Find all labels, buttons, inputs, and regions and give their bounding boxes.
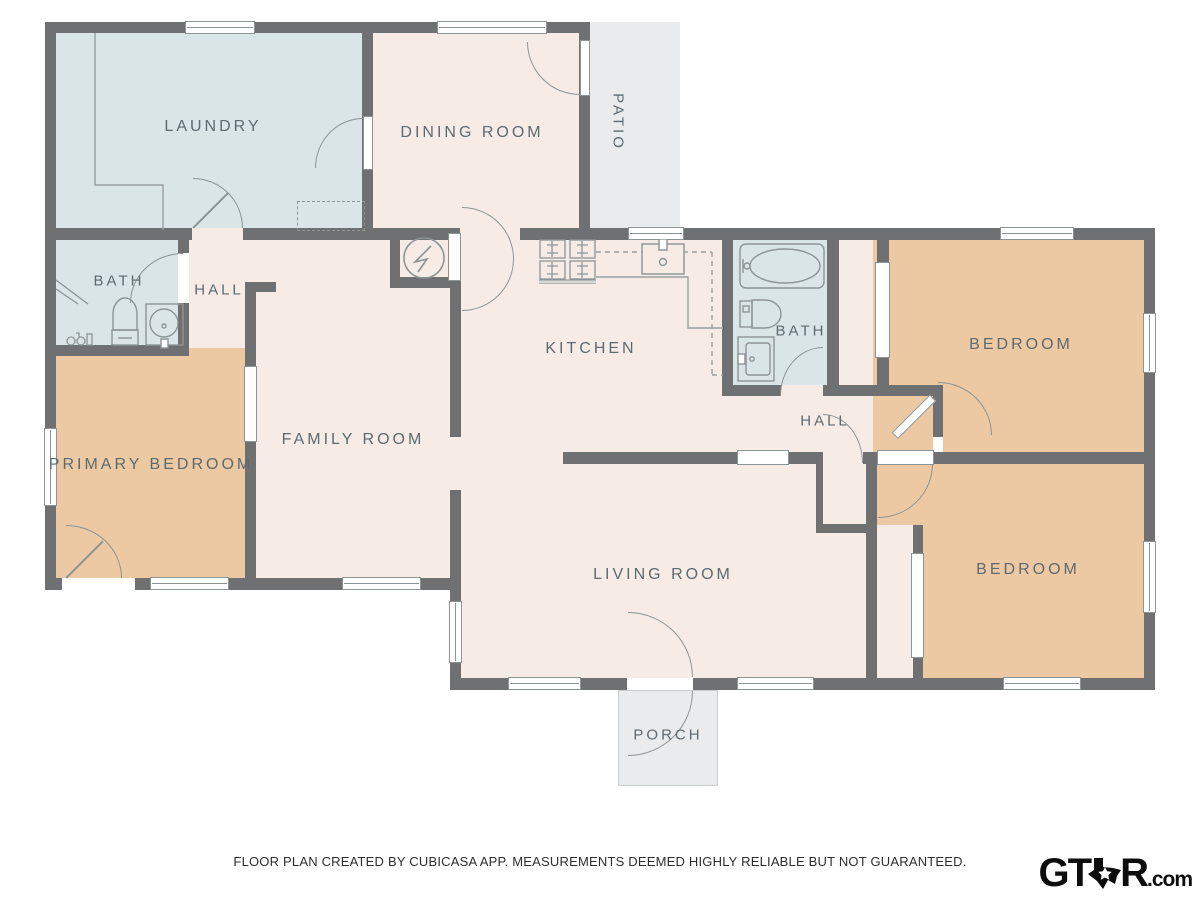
cased-opening (737, 450, 789, 465)
door-leaf (363, 116, 373, 170)
wall (816, 524, 873, 533)
laundry-counter-lines (90, 28, 170, 233)
window (1143, 541, 1156, 613)
door-opening (192, 228, 243, 240)
window (1003, 677, 1081, 690)
door-opening (62, 578, 135, 590)
water-heater-icon (401, 235, 447, 281)
room-label-kitchen: KITCHEN (545, 340, 636, 358)
room-label-porch: PORCH (633, 727, 702, 744)
room-label-hall2: HALL (800, 413, 850, 430)
room-label-dining: DINING ROOM (400, 124, 543, 142)
bathtub-icon (739, 243, 825, 289)
room-label-primary-bedroom: PRIMARY BEDROOM (49, 456, 253, 474)
room-patio (590, 22, 680, 228)
cased-opening (244, 366, 257, 442)
wall (866, 452, 877, 690)
window (342, 577, 421, 590)
shower-icon (56, 276, 92, 306)
wall (816, 464, 823, 524)
room-label-patio: PATIO (610, 93, 627, 151)
room-label-bath2: BATH (776, 323, 827, 340)
faucet-icon (64, 330, 94, 348)
door-leaf (877, 450, 934, 465)
room-label-laundry: LAUNDRY (164, 118, 261, 136)
closet-sliding-door (875, 262, 890, 358)
round-sink-icon (145, 303, 184, 349)
room-label-bath1: BATH (94, 273, 145, 290)
texas-star-icon (1088, 858, 1122, 895)
door-opening (933, 437, 943, 452)
window (737, 677, 814, 690)
window (437, 21, 547, 34)
floor-plan: LAUNDRY DINING ROOM PATIO BATH HALL KITC… (0, 0, 1200, 900)
wall (1144, 228, 1155, 690)
wall (827, 240, 839, 390)
wall (722, 385, 943, 396)
wall (256, 282, 276, 292)
room-label-hall1: HALL (194, 282, 244, 299)
room-label-living-room: LIVING ROOM (593, 566, 733, 584)
window (449, 601, 462, 663)
room-label-bedroom2: BEDROOM (976, 561, 1080, 579)
logo-text-right: R (1120, 853, 1147, 893)
toilet-icon (110, 294, 140, 348)
gtar-logo: GT R .com (1039, 853, 1192, 893)
disclaimer-text: FLOOR PLAN CREATED BY CUBICASA APP. MEAS… (0, 854, 1200, 869)
window (1000, 227, 1074, 240)
window (508, 677, 581, 690)
door-leaf (580, 40, 590, 96)
appliance-space (297, 201, 365, 231)
logo-suffix: .com (1147, 868, 1192, 892)
closet-sliding-door (911, 553, 924, 658)
door-opening (627, 678, 693, 690)
logo-text-left: GT (1039, 853, 1091, 893)
window (150, 577, 229, 590)
window (1143, 313, 1156, 373)
window (185, 21, 255, 34)
room-label-family-room: FAMILY ROOM (282, 431, 425, 449)
vanity-sink-icon (737, 336, 775, 382)
room-label-bedroom1: BEDROOM (969, 336, 1073, 354)
